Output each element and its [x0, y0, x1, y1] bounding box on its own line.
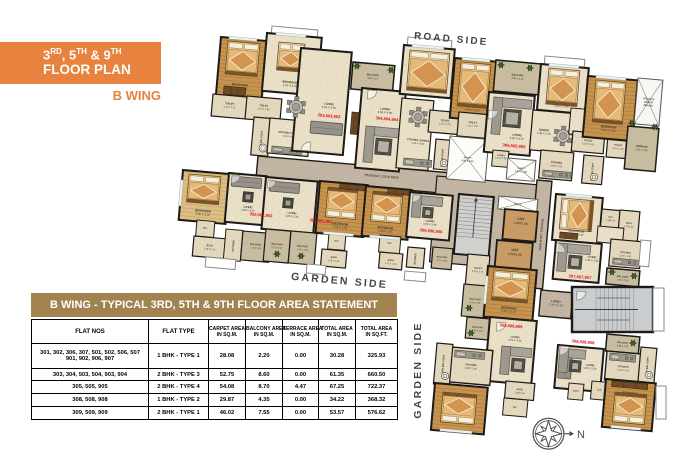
- svg-text:308,508,908: 308,508,908: [571, 338, 595, 345]
- svg-text:W.C.: W.C.: [597, 390, 602, 392]
- svg-text:BATH: BATH: [206, 244, 213, 248]
- svg-text:BATH: BATH: [331, 256, 338, 260]
- svg-text:BATH: BATH: [388, 259, 395, 263]
- svg-text:BATH: BATH: [573, 389, 579, 393]
- svg-text:BATH: BATH: [626, 222, 633, 226]
- svg-text:N: N: [577, 429, 585, 441]
- svg-text:BATH: BATH: [517, 388, 524, 392]
- svg-text:GARDEN SIDE: GARDEN SIDE: [412, 321, 424, 418]
- svg-text:DUCT: DUCT: [514, 202, 522, 207]
